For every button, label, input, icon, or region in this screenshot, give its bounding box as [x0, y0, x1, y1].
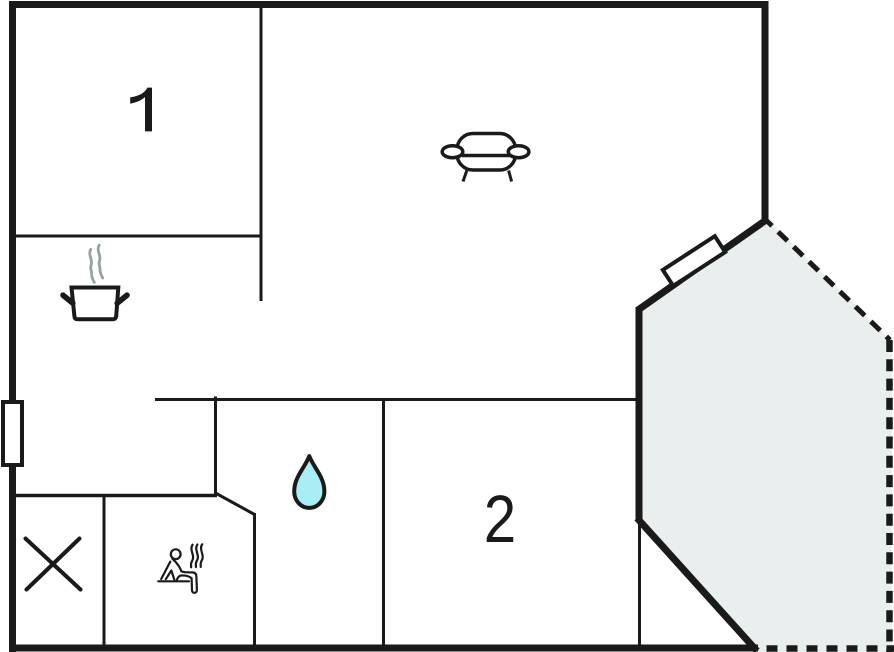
svg-text:2: 2	[484, 482, 516, 557]
